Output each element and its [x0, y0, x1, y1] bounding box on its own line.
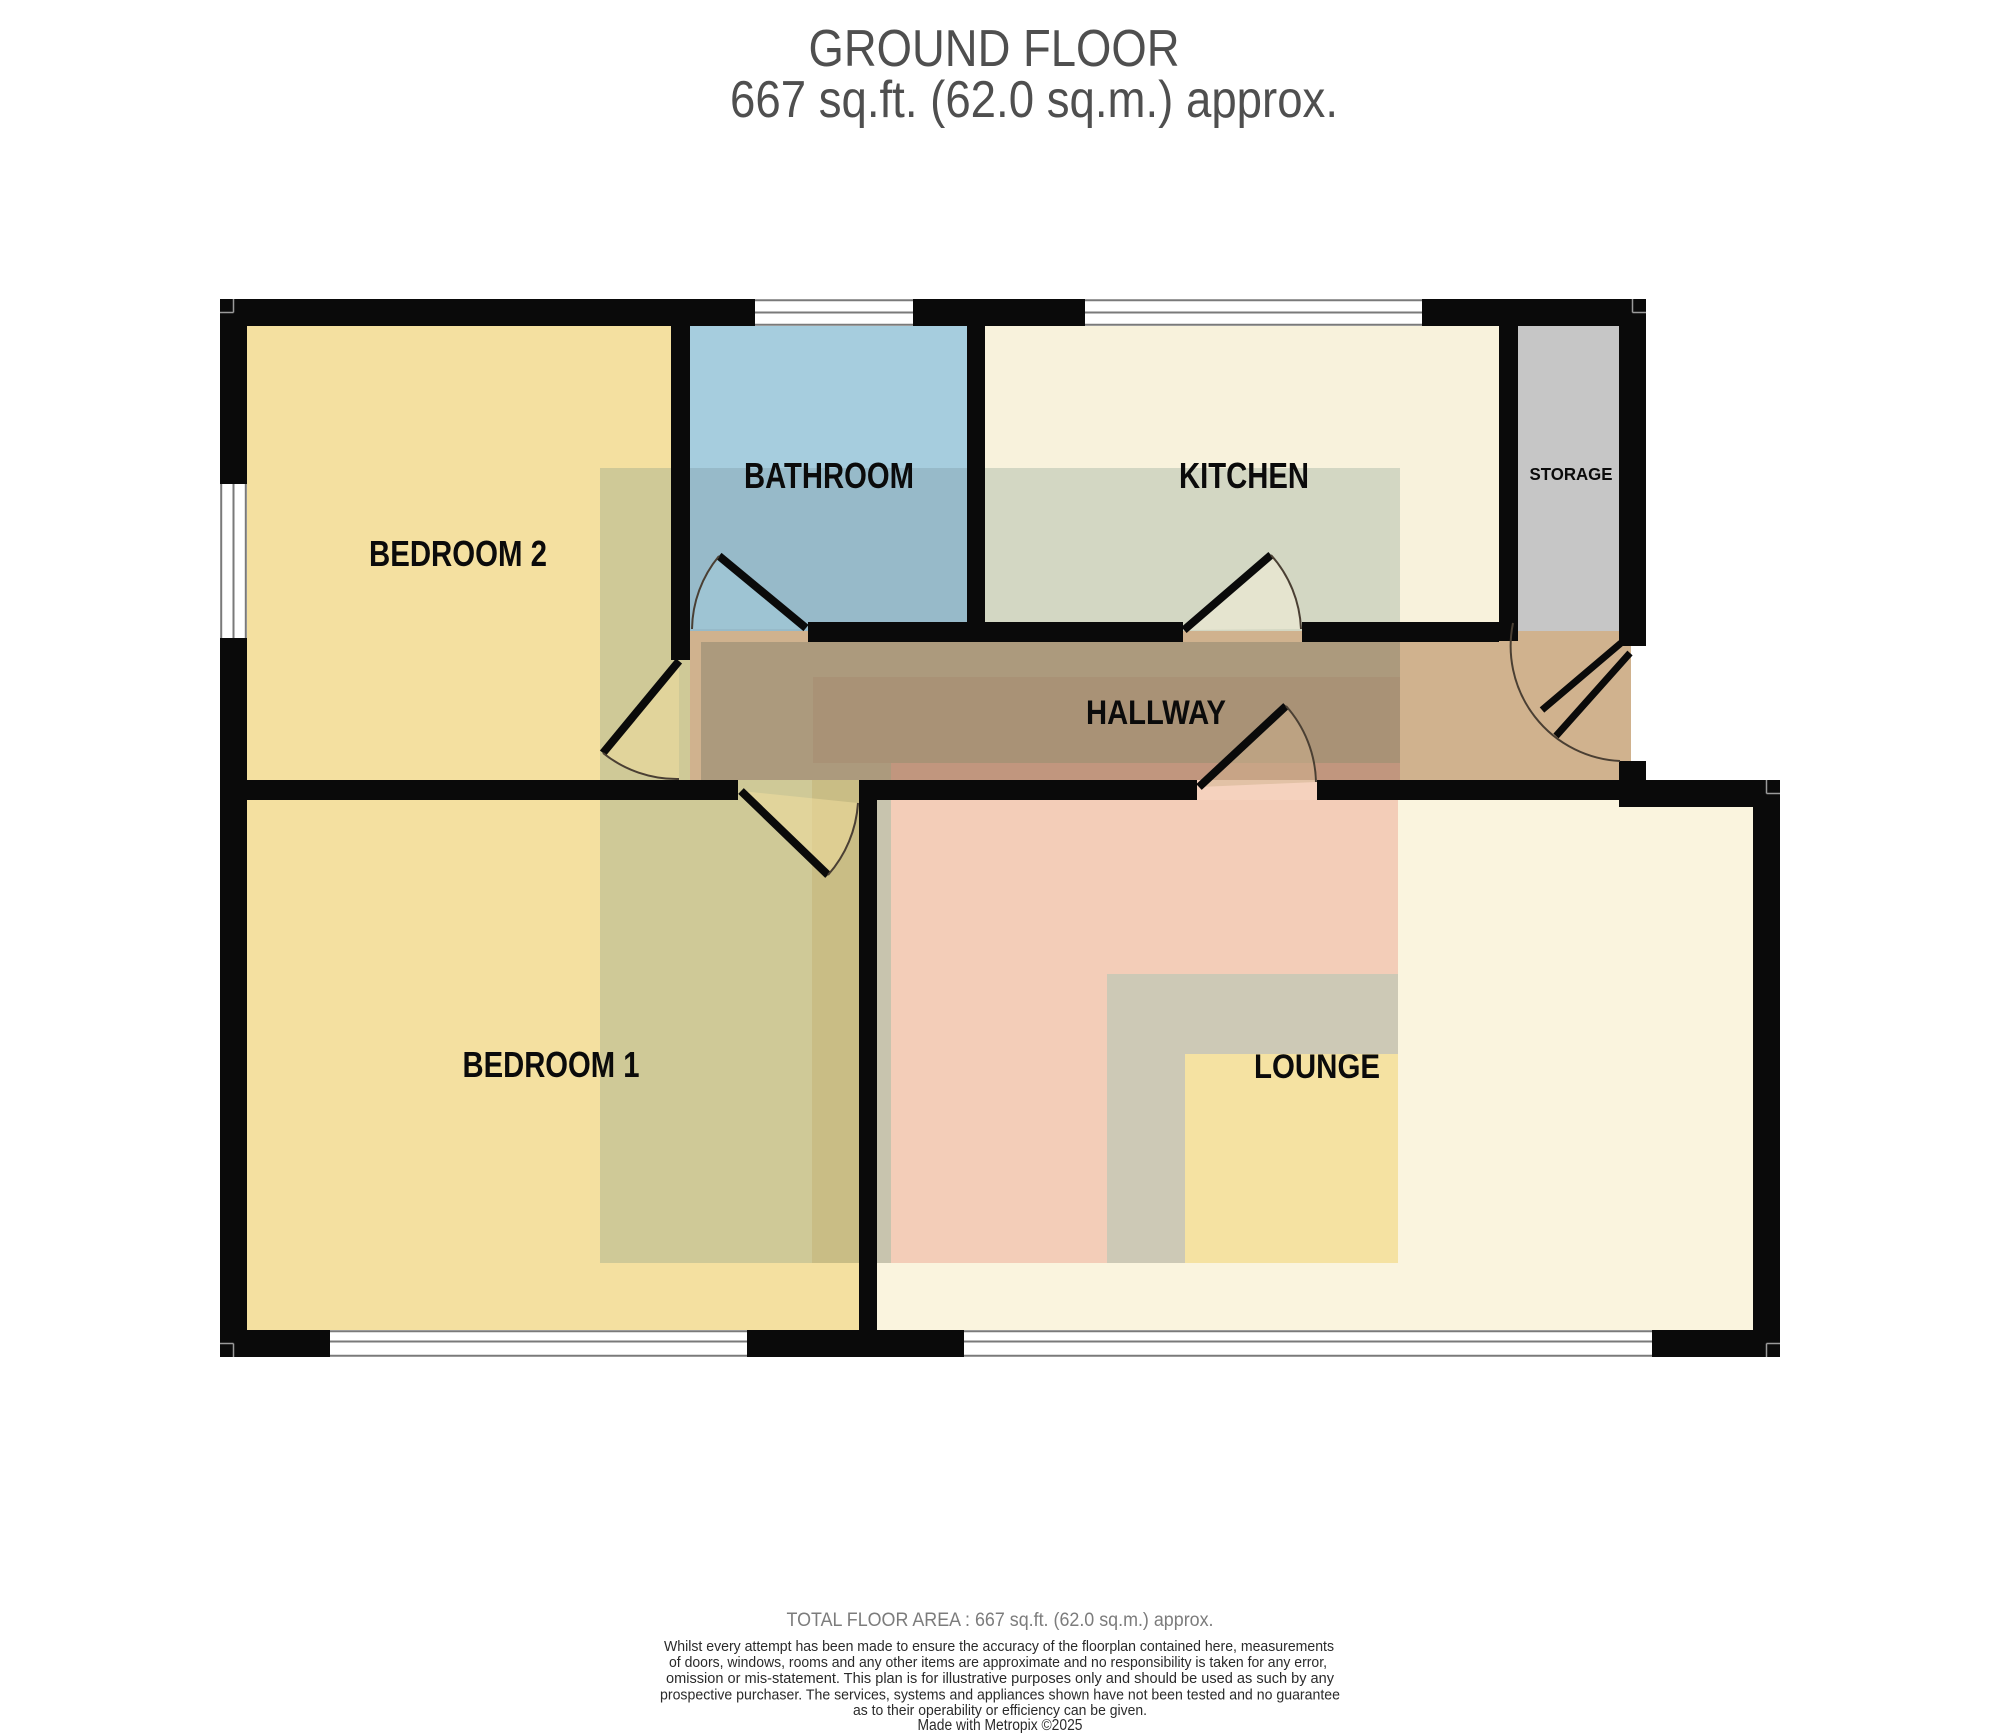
svg-text:BATHROOM: BATHROOM: [744, 455, 914, 496]
svg-text:TOTAL FLOOR AREA : 667 sq.ft.: TOTAL FLOOR AREA : 667 sq.ft. (62.0 sq.m…: [787, 1610, 1214, 1631]
svg-text:omission or mis-statement. Thi: omission or mis-statement. This plan is …: [666, 1670, 1334, 1687]
svg-text:LOUNGE: LOUNGE: [1254, 1048, 1380, 1086]
svg-text:GROUND FLOOR: GROUND FLOOR: [809, 20, 1180, 78]
svg-text:STORAGE: STORAGE: [1530, 464, 1613, 484]
svg-text:667 sq.ft. (62.0 sq.m.) approx: 667 sq.ft. (62.0 sq.m.) approx.: [730, 71, 1338, 129]
svg-text:prospective purchaser. The ser: prospective purchaser. The services, sys…: [660, 1687, 1340, 1704]
svg-text:HALLWAY: HALLWAY: [1086, 694, 1226, 732]
svg-text:BEDROOM 1: BEDROOM 1: [463, 1044, 640, 1085]
svg-text:KITCHEN: KITCHEN: [1179, 455, 1309, 496]
svg-text:Whilst every attempt has been: Whilst every attempt has been made to en…: [664, 1638, 1334, 1655]
svg-text:Made with Metropix ©2025: Made with Metropix ©2025: [918, 1717, 1083, 1733]
svg-text:BEDROOM 2: BEDROOM 2: [369, 533, 547, 574]
svg-text:of doors, windows, rooms and a: of doors, windows, rooms and any other i…: [669, 1654, 1327, 1671]
